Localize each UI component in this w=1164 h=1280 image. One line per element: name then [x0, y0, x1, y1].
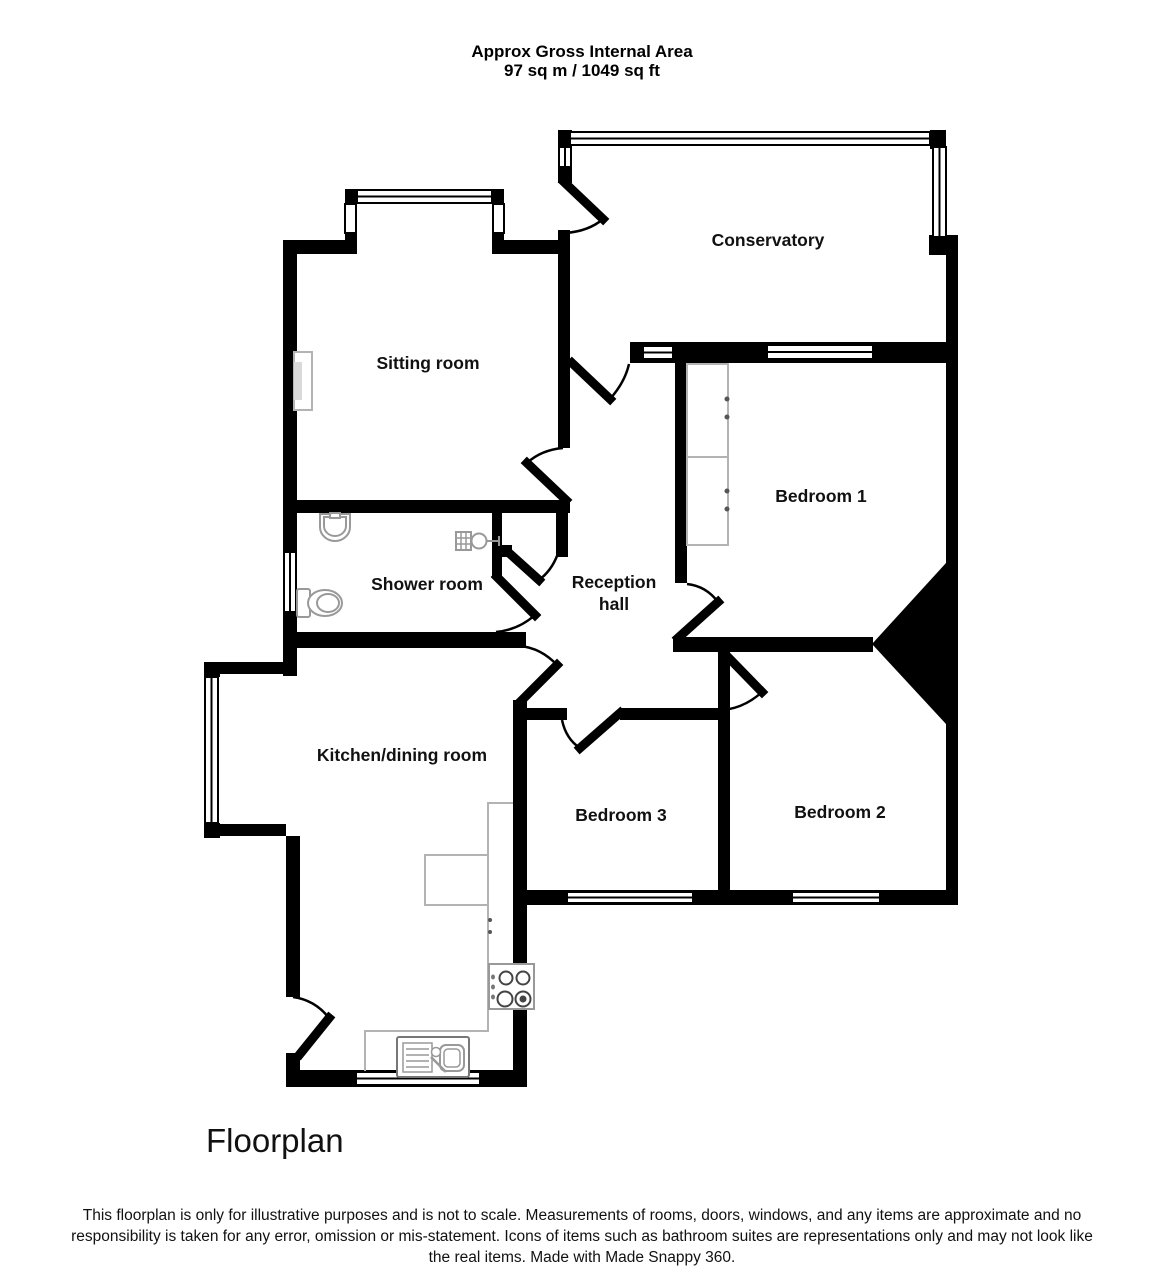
- shower-room-door: [496, 577, 535, 632]
- room-label-conservatory: Conservatory: [712, 230, 825, 250]
- kitchen-counter: [365, 803, 513, 1071]
- room-label-bedroom-3: Bedroom 3: [575, 805, 667, 825]
- toilet-icon: [297, 589, 342, 617]
- room-label-shower-room: Shower room: [371, 574, 483, 594]
- conservatory-exterior-door: [564, 182, 603, 233]
- bedroom1-door: [678, 584, 718, 638]
- fireplace: [294, 352, 312, 410]
- room-label-bedroom-2: Bedroom 2: [794, 802, 886, 822]
- bedroom1-window: [767, 345, 873, 359]
- room-label-sitting-room: Sitting room: [376, 353, 479, 373]
- room-label-bedroom-1: Bedroom 1: [775, 486, 867, 506]
- room-label-reception-hall-line1: Reception: [572, 572, 657, 592]
- conservatory-right-window: [933, 147, 946, 237]
- room-label-kitchen-dining: Kitchen/dining room: [317, 745, 487, 765]
- kitchen-sink-icon: [397, 1037, 469, 1077]
- basin-icon: [320, 513, 350, 541]
- floorplan-page: Approx Gross Internal Area 97 sq m / 104…: [0, 0, 1164, 1280]
- doors: [293, 182, 762, 1054]
- sitting-bay-window: [345, 190, 504, 233]
- kitchen-door: [520, 646, 557, 702]
- sitting-room-door: [527, 448, 566, 500]
- hob-icon: [489, 964, 534, 1009]
- conservatory-top-window: [570, 132, 930, 145]
- floorplan-title: Floorplan: [206, 1122, 344, 1160]
- room-labels: Conservatory Sitting room Shower room Re…: [317, 230, 886, 825]
- room-label-reception-hall-line2: hall: [599, 594, 629, 614]
- disclaimer-text: This floorplan is only for illustrative …: [67, 1206, 1097, 1268]
- shower-room-window: [284, 552, 296, 612]
- kitchen-bay-window: [205, 677, 218, 823]
- bedroom3-door: [562, 713, 620, 748]
- cupboard-door: [509, 553, 557, 580]
- bedroom3-window: [567, 892, 693, 903]
- wardrobe: [687, 364, 730, 545]
- conservatory-left-window: [559, 147, 571, 167]
- bedroom2-window: [792, 892, 880, 903]
- kitchen-exterior-door: [293, 997, 329, 1054]
- conservatory-door: [572, 363, 629, 399]
- bedroom1-window-small: [643, 346, 673, 359]
- floorplan-drawing: Conservatory Sitting room Shower room Re…: [0, 0, 1164, 1280]
